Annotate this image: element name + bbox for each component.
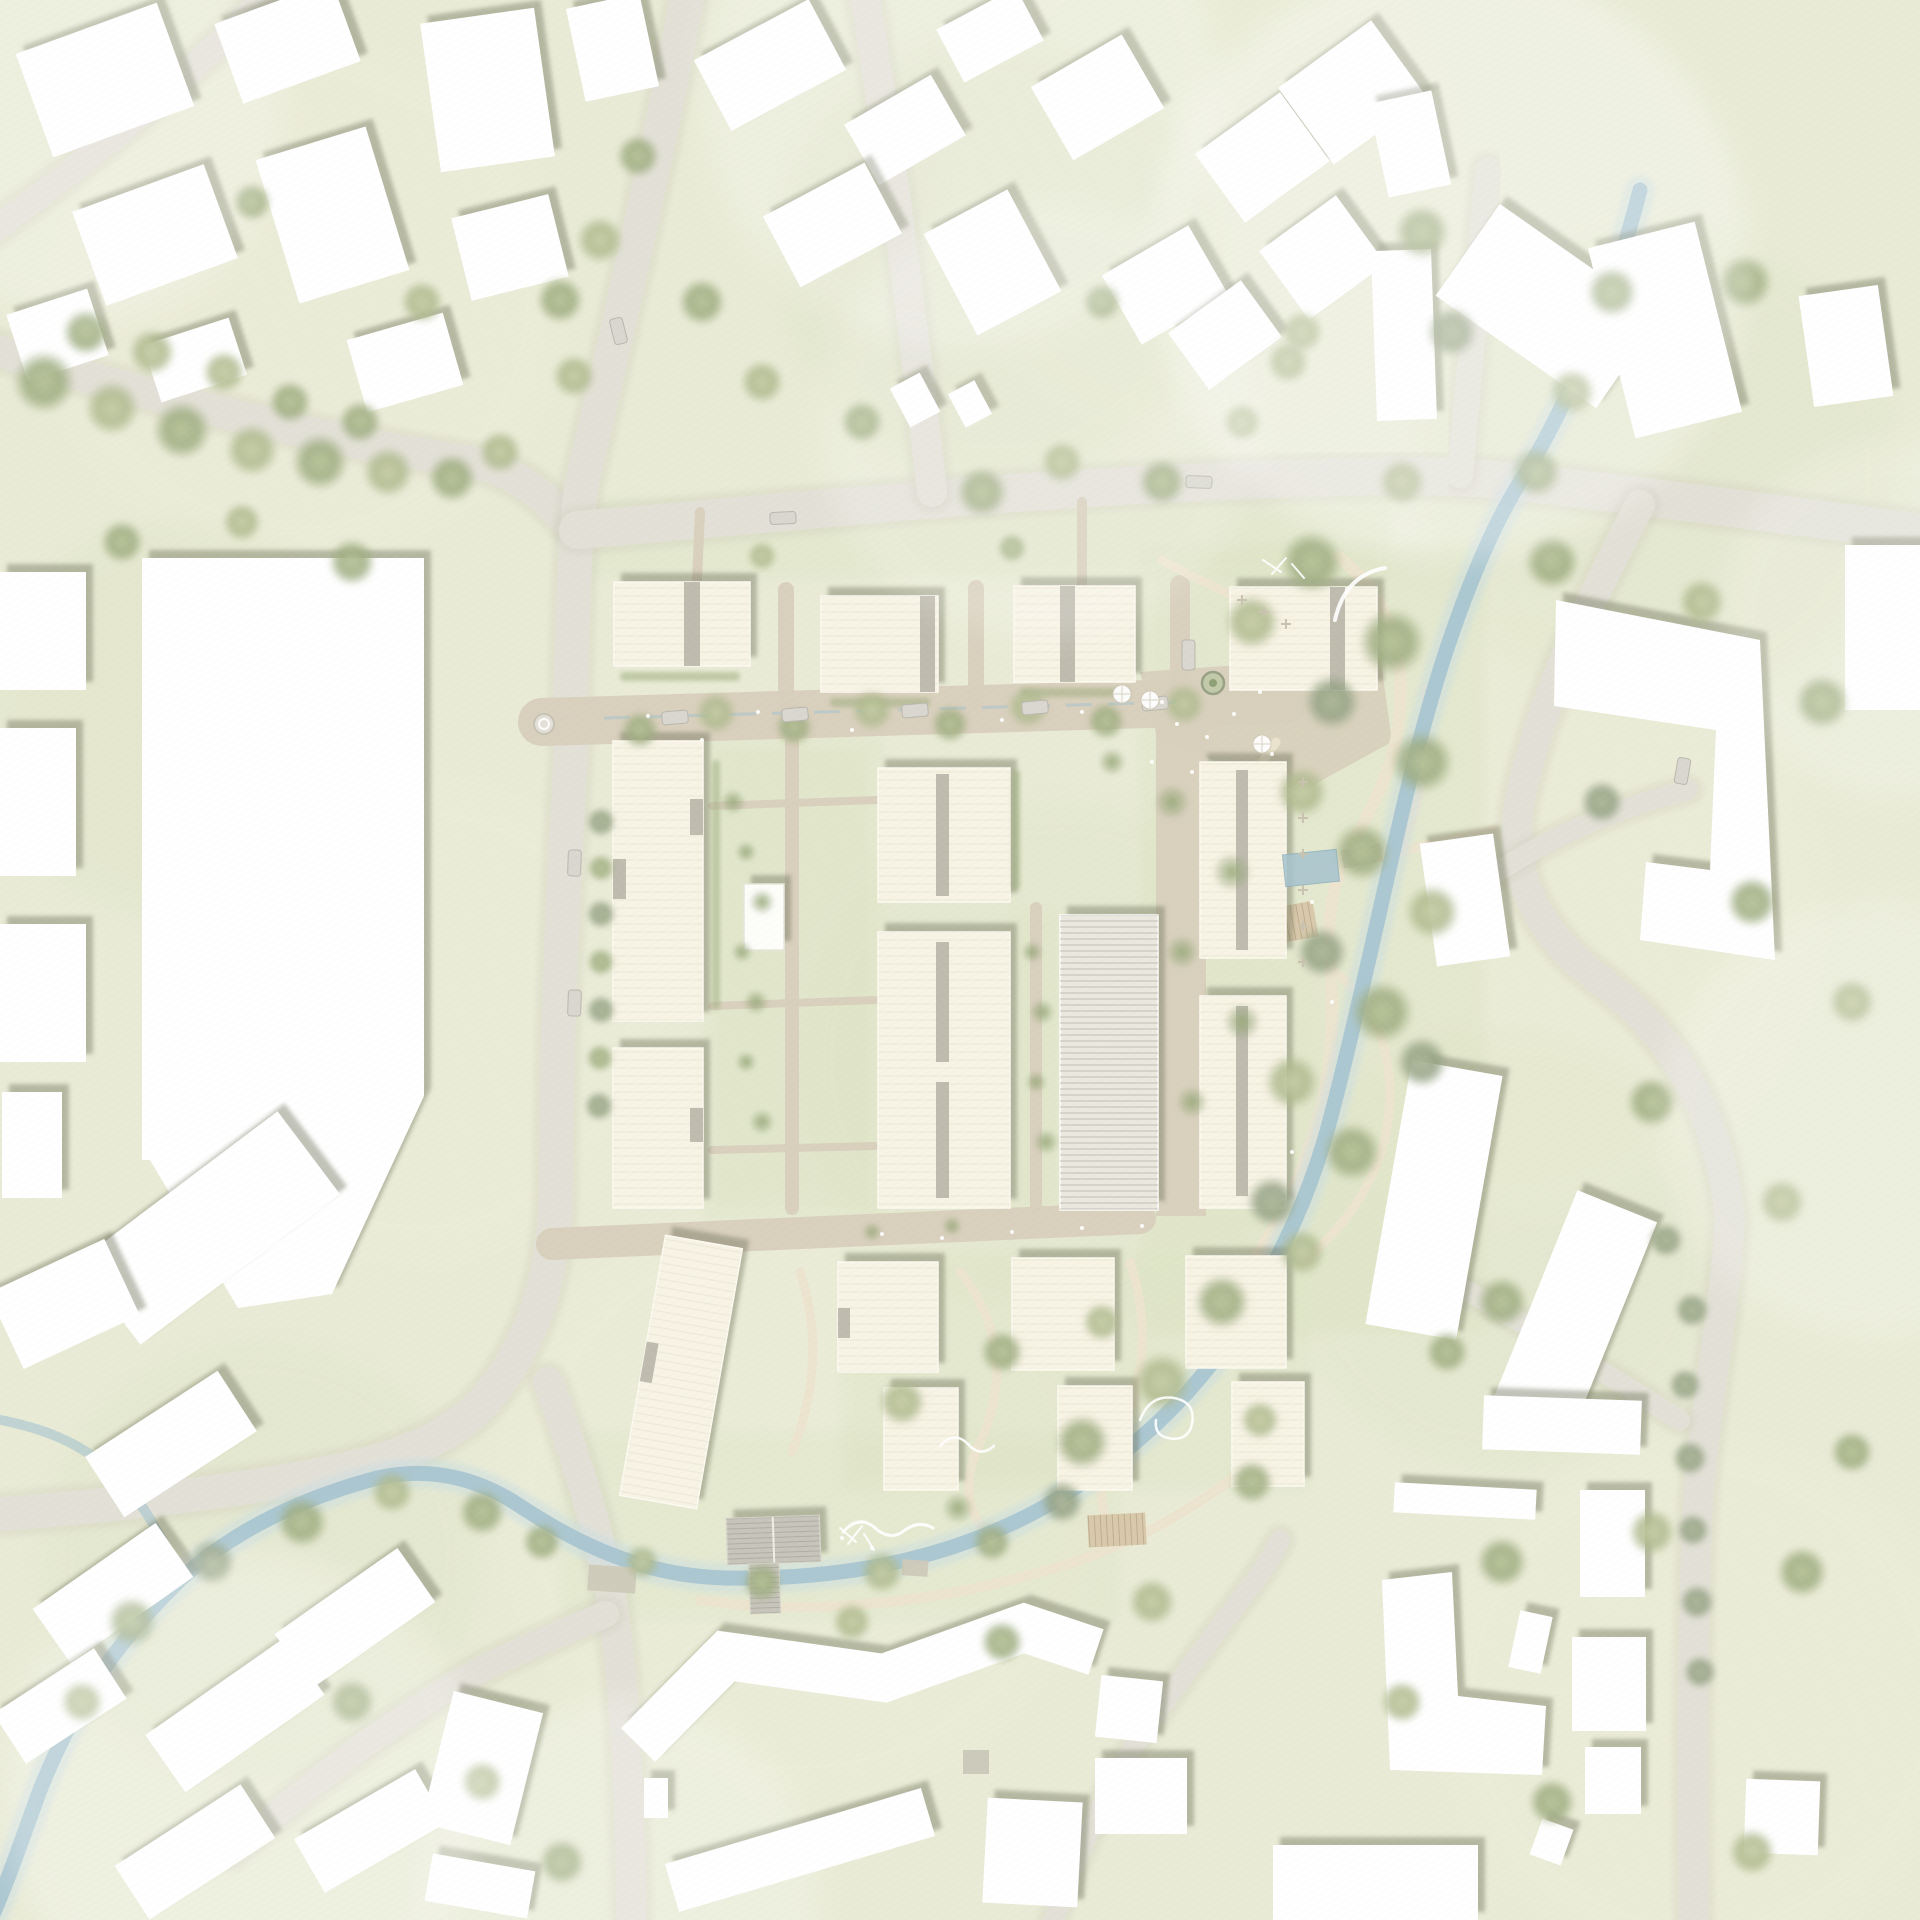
parked-car bbox=[770, 511, 797, 524]
tree bbox=[1476, 1276, 1528, 1328]
tree bbox=[1390, 730, 1454, 794]
bush bbox=[731, 941, 753, 963]
parked-car bbox=[781, 707, 808, 722]
tree bbox=[1332, 822, 1392, 882]
pedestrian-dot bbox=[1290, 1150, 1294, 1154]
tree bbox=[1830, 1430, 1874, 1474]
bush bbox=[743, 989, 769, 1015]
tree bbox=[552, 354, 596, 398]
roof-core-strip bbox=[936, 942, 949, 1062]
site-building-roof-texture bbox=[614, 582, 750, 666]
context-building bbox=[0, 572, 86, 690]
tree bbox=[1683, 1655, 1717, 1689]
context-building bbox=[982, 1798, 1082, 1908]
tree bbox=[1476, 1536, 1528, 1588]
tree bbox=[1380, 1680, 1424, 1724]
tree bbox=[100, 520, 144, 564]
context-building bbox=[1799, 285, 1894, 407]
tree bbox=[1358, 608, 1426, 676]
tree bbox=[291, 433, 349, 491]
parked-car bbox=[661, 710, 688, 725]
roof-core-strip bbox=[613, 859, 626, 899]
tree bbox=[747, 541, 777, 571]
tree bbox=[1528, 1778, 1576, 1826]
site-building-roof-texture bbox=[838, 1262, 938, 1372]
pedestrian-dot bbox=[1310, 900, 1314, 904]
tree bbox=[338, 400, 382, 444]
tree bbox=[276, 1496, 328, 1548]
parked-car bbox=[568, 990, 582, 1016]
bush bbox=[942, 1216, 962, 1236]
tree bbox=[1674, 1292, 1710, 1328]
tree bbox=[1128, 1578, 1176, 1626]
bush bbox=[1021, 941, 1043, 963]
tree bbox=[878, 1378, 926, 1426]
tree bbox=[980, 1330, 1024, 1374]
bush bbox=[749, 889, 775, 915]
bush bbox=[1154, 784, 1190, 820]
tree bbox=[1296, 926, 1348, 978]
tree bbox=[1322, 1122, 1382, 1182]
context-building bbox=[1482, 1395, 1642, 1454]
tree bbox=[678, 278, 726, 326]
pedestrian-dot bbox=[1000, 718, 1004, 722]
tree bbox=[1396, 1036, 1448, 1088]
tree bbox=[931, 705, 969, 743]
lane-north-path-1 bbox=[697, 512, 700, 580]
roof-core-strip bbox=[936, 774, 949, 896]
roof-core-strip bbox=[838, 1308, 850, 1338]
site-building-roof-texture bbox=[613, 1048, 703, 1208]
tree bbox=[1648, 1222, 1684, 1258]
masterplan-stage bbox=[0, 0, 1920, 1920]
masterplan-svg bbox=[0, 0, 1920, 1920]
site-building-roof-texture bbox=[613, 741, 703, 1021]
tree bbox=[740, 360, 784, 404]
planter-shrub bbox=[1209, 679, 1217, 687]
bush bbox=[862, 1222, 882, 1242]
tree bbox=[1425, 1330, 1469, 1374]
pedestrian-dot bbox=[880, 1232, 884, 1236]
tree bbox=[1728, 1828, 1776, 1876]
tree bbox=[1628, 1508, 1676, 1556]
roof-core-strip bbox=[936, 1082, 949, 1198]
pedestrian-dot bbox=[1010, 1230, 1014, 1234]
tree bbox=[586, 1044, 614, 1072]
tree bbox=[1676, 1513, 1710, 1547]
pedestrian-dot bbox=[1080, 1226, 1084, 1230]
bush bbox=[1165, 935, 1199, 969]
pedestrian-dot bbox=[1232, 712, 1236, 716]
pedestrian-dot bbox=[646, 714, 650, 718]
tree bbox=[616, 134, 660, 178]
tree bbox=[584, 1091, 614, 1121]
tree bbox=[536, 276, 584, 324]
pedestrian-dot bbox=[1205, 735, 1209, 739]
tree bbox=[860, 1550, 904, 1594]
lane-court-west-stub3 bbox=[712, 1146, 876, 1150]
tree bbox=[1224, 594, 1280, 650]
bush bbox=[1176, 1086, 1208, 1118]
pedestrian-dot bbox=[870, 1546, 874, 1550]
hedge-strip bbox=[712, 760, 720, 1010]
tree bbox=[225, 423, 279, 477]
bush bbox=[735, 1051, 757, 1073]
tree bbox=[1040, 1480, 1084, 1524]
pedestrian-dot bbox=[940, 1236, 944, 1240]
pedestrian-dot bbox=[840, 1536, 844, 1540]
hedge-strip bbox=[1012, 770, 1020, 890]
tree bbox=[1726, 876, 1778, 928]
context-building bbox=[1095, 1758, 1187, 1834]
parked-car bbox=[901, 703, 928, 718]
tree bbox=[695, 692, 737, 734]
pedestrian-dot bbox=[1140, 1224, 1144, 1228]
tree bbox=[851, 689, 893, 731]
bush bbox=[735, 841, 757, 863]
roof-core-strip bbox=[690, 1108, 703, 1142]
pedestrian-dot bbox=[850, 728, 854, 732]
pedestrian-dot bbox=[1150, 760, 1154, 764]
tree bbox=[202, 350, 246, 394]
tree bbox=[1087, 702, 1125, 740]
tree bbox=[362, 446, 414, 498]
context-building bbox=[420, 8, 555, 173]
tree bbox=[586, 995, 616, 1025]
context-building bbox=[0, 728, 76, 876]
pedestrian-dot bbox=[1270, 752, 1274, 756]
tree bbox=[1580, 780, 1624, 824]
roof-core-strip bbox=[684, 582, 700, 666]
tree bbox=[1054, 1414, 1110, 1470]
tree bbox=[128, 328, 176, 376]
tree bbox=[152, 400, 212, 460]
tree bbox=[624, 1544, 660, 1580]
context-building bbox=[1095, 1675, 1163, 1743]
tree bbox=[621, 711, 659, 749]
tree bbox=[1240, 1400, 1280, 1440]
context-building bbox=[0, 924, 86, 1062]
bush bbox=[1223, 1003, 1261, 1041]
tree bbox=[400, 280, 444, 324]
tree bbox=[1082, 1302, 1122, 1342]
parked-car bbox=[568, 850, 582, 876]
tree bbox=[1280, 530, 1344, 594]
tree bbox=[268, 380, 312, 424]
pedestrian-dot bbox=[700, 738, 704, 742]
parked-car bbox=[1021, 700, 1048, 715]
bush bbox=[1212, 852, 1252, 892]
tree bbox=[1776, 1546, 1828, 1598]
tree bbox=[478, 430, 522, 474]
tree bbox=[1132, 1352, 1192, 1412]
context-building bbox=[2, 1092, 62, 1198]
tree bbox=[1404, 884, 1460, 940]
water-basin bbox=[1282, 849, 1339, 886]
tree bbox=[1264, 1054, 1320, 1110]
tree bbox=[12, 350, 76, 414]
roof-core-strip bbox=[690, 799, 703, 835]
tree bbox=[972, 1522, 1012, 1562]
tree bbox=[586, 807, 616, 837]
tree bbox=[1678, 578, 1726, 626]
pedestrian-dot bbox=[756, 710, 760, 714]
tree bbox=[370, 1470, 414, 1514]
tree bbox=[587, 854, 615, 882]
tree bbox=[328, 538, 376, 586]
bush bbox=[720, 789, 746, 815]
context-building bbox=[1585, 1747, 1641, 1814]
pedestrian-dot bbox=[1258, 690, 1262, 694]
context-building bbox=[1273, 1845, 1478, 1920]
tree bbox=[84, 380, 140, 436]
bush bbox=[1033, 1129, 1059, 1155]
tree bbox=[1194, 1274, 1250, 1330]
bush bbox=[749, 1109, 775, 1135]
parked-car bbox=[1182, 640, 1195, 670]
hedge-strip bbox=[620, 672, 740, 681]
bush bbox=[1098, 748, 1126, 776]
tree bbox=[587, 948, 615, 976]
tree bbox=[1668, 1368, 1702, 1402]
tree bbox=[522, 1522, 562, 1562]
footbridge bbox=[901, 1559, 928, 1577]
tree bbox=[1679, 1584, 1715, 1620]
tree bbox=[1246, 1176, 1298, 1228]
tree bbox=[1276, 766, 1328, 818]
timber-deck-texture bbox=[1087, 1513, 1147, 1548]
site-building-roof-texture bbox=[1060, 915, 1158, 1210]
tree bbox=[427, 453, 477, 503]
tree bbox=[1278, 1228, 1326, 1276]
tree bbox=[1230, 1460, 1274, 1504]
tree bbox=[1350, 980, 1414, 1044]
tree bbox=[742, 1562, 782, 1602]
pedestrian-dot bbox=[1190, 770, 1194, 774]
atmospheric-haze bbox=[820, 200, 1260, 640]
tree bbox=[576, 216, 624, 264]
tree bbox=[1163, 683, 1205, 725]
tree bbox=[832, 1602, 872, 1642]
pedestrian-dot bbox=[1175, 722, 1179, 726]
tree bbox=[1304, 674, 1360, 730]
pedestrian-dot bbox=[1080, 710, 1084, 714]
context-building bbox=[1572, 1637, 1646, 1731]
tree bbox=[1672, 1440, 1708, 1476]
tree bbox=[222, 502, 262, 542]
bush bbox=[1025, 1071, 1047, 1093]
mini-roundabout bbox=[534, 714, 554, 734]
tree bbox=[980, 1620, 1024, 1664]
bush bbox=[942, 1492, 974, 1524]
pedestrian-dot bbox=[1160, 700, 1164, 704]
tree bbox=[458, 1488, 506, 1536]
bush bbox=[1029, 999, 1055, 1025]
pedestrian-dot bbox=[1330, 1000, 1334, 1004]
tree bbox=[586, 899, 616, 929]
paved-pad bbox=[963, 1750, 989, 1774]
